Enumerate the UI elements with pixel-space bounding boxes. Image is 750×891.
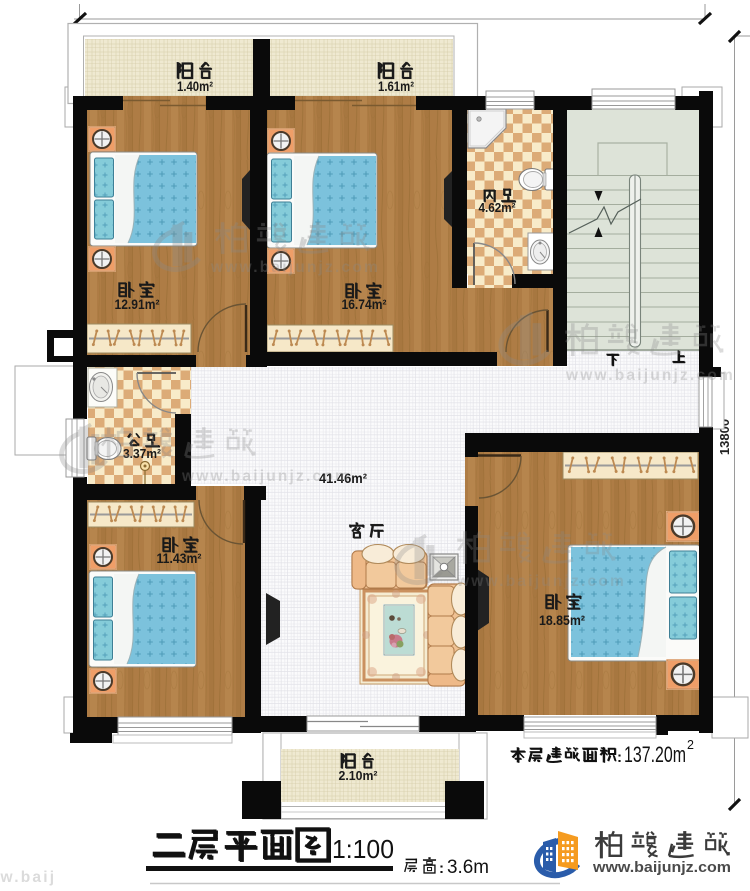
svg-text:3.37m²: 3.37m² [123,446,162,461]
svg-text:16.74m²: 16.74m² [342,297,387,312]
svg-text:www.baijunjz.com: www.baijunjz.com [565,367,735,384]
svg-text:www.baijunjz.com: www.baijunjz.com [181,468,351,485]
svg-text::: : [439,860,444,877]
svg-text:www.baijunjz.com: www.baijunjz.com [456,573,626,590]
svg-text:3.6m: 3.6m [447,857,489,878]
svg-text:137.20m: 137.20m [624,742,686,767]
svg-text:2.10m²: 2.10m² [339,768,379,783]
svg-text:1.40m²: 1.40m² [177,79,213,94]
svg-text:1.61m²: 1.61m² [378,79,414,94]
svg-text:18.85m²: 18.85m² [539,613,585,628]
svg-text:12.91m²: 12.91m² [115,297,160,312]
svg-text:www.baijunjz.com: www.baijunjz.com [210,259,380,276]
svg-text:4.62m²: 4.62m² [479,200,517,215]
svg-text:1:100: 1:100 [332,834,394,864]
svg-text:www.baijunjz.com: www.baijunjz.com [592,860,731,876]
svg-text:www.baij: www.baij [0,869,56,886]
svg-text:2: 2 [687,738,694,752]
svg-text:11.43m²: 11.43m² [157,551,202,566]
svg-text::: : [617,749,622,766]
